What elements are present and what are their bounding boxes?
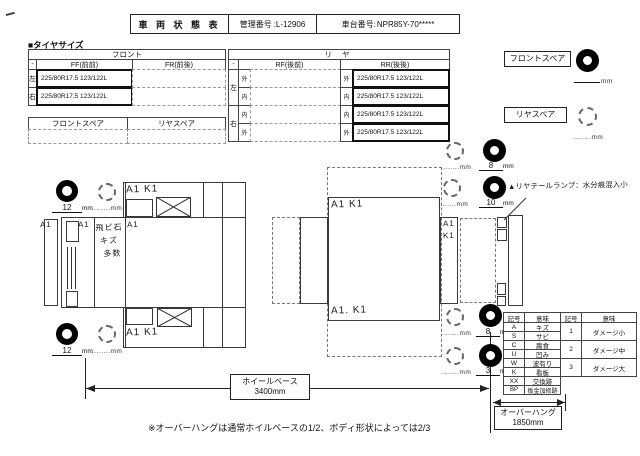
- legend-level-sym: 2: [560, 340, 582, 359]
- rear-rf-value-3: [250, 123, 341, 142]
- tire-dashed-icon: [446, 308, 464, 326]
- wheelbase-label: ホイールベース: [242, 377, 298, 387]
- wheelbase-value: 3400mm: [254, 387, 285, 397]
- scan-mark: [4, 6, 15, 16]
- tire-solid-icon: [483, 176, 506, 199]
- legend-code-mean: 板金加修跡: [524, 385, 561, 395]
- damage-mark: A1: [40, 220, 52, 229]
- crossed-box-marker: [157, 308, 192, 327]
- tail-lamp-square: [497, 229, 507, 241]
- damage-mark-alki: A1. K1: [331, 304, 367, 316]
- tread-blank-r1: ........mm: [441, 164, 471, 171]
- rear-panel-outline: [508, 215, 523, 306]
- rear-tire-table: リ ヤ - RF(後前) RR(後後) 左 右 外 外 225/80R17.5 …: [228, 49, 450, 142]
- spare-front-value: [28, 129, 128, 144]
- strip-divider-line: [203, 307, 204, 348]
- cab-detail-rect: [66, 291, 78, 307]
- tread-blank-left-bottom: ........mm: [92, 348, 122, 355]
- cargo-box-solid-outline: [328, 197, 440, 321]
- tread-blank-r2: ........mm: [438, 201, 468, 208]
- spare-rear-value: [127, 129, 226, 144]
- front-fr-right-value: [132, 87, 226, 106]
- damage-mark: A1: [78, 220, 90, 229]
- tire-solid-icon: [56, 180, 78, 202]
- bed-detail-rect: [126, 308, 153, 325]
- damage-mark-alki: A1 K1: [126, 183, 159, 195]
- wheelbase-box: ホイールベース 3400mm: [230, 374, 310, 400]
- rear-spare-box: リヤスペア: [504, 107, 567, 123]
- doc-title: 車 両 状 態 表: [138, 18, 220, 31]
- grille-stripes: [67, 247, 78, 289]
- vehicle-condition-sheet: 車 両 状 態 表 管理番号 :L-12906 車台番号: NPR85Y-70*…: [0, 0, 640, 456]
- rear-rr-value-0: 225/80R17.5 123/122L: [352, 69, 450, 88]
- front-ff-left-value: 225/80R17.5 123/122L: [36, 69, 133, 88]
- tread-blank-left-top: ........mm: [92, 205, 122, 212]
- front-bumper-outline: [44, 219, 58, 306]
- front-spare-depth: mm: [574, 74, 613, 85]
- fill-in-line: [574, 74, 600, 83]
- front-spare-box: フロントスペア: [504, 51, 571, 67]
- front-ff-right-value: 225/80R17.5 123/122L: [36, 87, 133, 106]
- tire-dashed-icon: [446, 142, 464, 160]
- doc-title-cell: 車 両 状 態 表: [130, 14, 229, 34]
- legend-level-mean: ダメージ大: [581, 358, 637, 377]
- bed-rear-gate: [222, 182, 246, 348]
- tread-blank-r4: ........mm: [441, 369, 471, 376]
- legend-code-sym: BP: [503, 385, 525, 395]
- taillamp-annotation: ▲リヤテールランプ：水分痕混入小: [508, 179, 628, 192]
- crossed-box-marker: [156, 197, 191, 217]
- bumper-dashed-outline: [272, 217, 300, 304]
- chassis-number-value: NPR85Y-70*****: [377, 20, 435, 29]
- damage-mark: A1: [443, 219, 455, 228]
- rear-rf-value-0: [250, 69, 341, 88]
- rear-rr-value-1: 225/80R17.5 123/122L: [352, 87, 450, 106]
- tail-lamp-square: [497, 283, 506, 295]
- tire-solid-icon: [56, 323, 78, 345]
- damage-mark-alki: A1 K1: [331, 198, 364, 210]
- rear-rr-value-2: 225/80R17.5 123/122L: [352, 105, 450, 124]
- legend-level-sym: 1: [560, 322, 582, 341]
- tire-dashed-icon: [98, 325, 116, 343]
- mgmt-number-value: :L-12906: [274, 20, 306, 29]
- truck-body-outline: [61, 217, 246, 308]
- front-fr-left-value: [132, 69, 226, 88]
- bed-detail-rect: [126, 199, 153, 217]
- chassis-number-label: 車台番号:: [342, 19, 376, 30]
- legend-level-mean: ダメージ中: [581, 340, 637, 359]
- tread-value-left-top: 12mm: [52, 203, 93, 213]
- cab-solid-outline: [300, 217, 328, 304]
- mgmt-number-cell: 管理番号 :L-12906: [228, 14, 317, 34]
- tail-lamp-square: [497, 217, 507, 228]
- damage-mark: A1: [127, 220, 139, 229]
- rear-spare-depth: ........mm: [573, 134, 603, 141]
- damage-mark-alki: A1 K1: [126, 326, 159, 338]
- tire-dashed-icon: [446, 347, 464, 365]
- tail-lamp-square: [497, 296, 506, 306]
- tire-solid-icon: [483, 139, 506, 162]
- overhang-value: 1850mm: [512, 418, 543, 428]
- tire-dashed-icon: [443, 179, 461, 197]
- rear-rr-value-3: 225/80R17.5 123/122L: [352, 123, 450, 142]
- tire-solid-icon: [479, 304, 502, 327]
- tread-value-left-bottom: 12mm: [52, 346, 93, 356]
- spare-tire-table: フロントスペア リヤスペア: [28, 117, 226, 144]
- legend-table: 記号 意味 記号 意味 A キズ S サビ C 腐食 U 凹み W 波有り K …: [503, 312, 637, 394]
- legend-level-sym: 3: [560, 358, 582, 377]
- rear-spare-tire-icon: [578, 107, 597, 126]
- front-tire-table: フロント - FF(前前) FR(前後) 左 225/80R17.5 123/1…: [28, 49, 226, 106]
- rear-dashed-outline: [460, 218, 496, 303]
- stone-chip-note: 飛ビ石 キズ 多数: [95, 220, 130, 260]
- tread-value-r2: 10mm: [479, 198, 514, 208]
- tire-dashed-icon: [98, 183, 116, 201]
- tire-solid-icon: [479, 344, 502, 367]
- overhang-note: ※オーバーハングは通常ホイルベースの1/2、ボディ形状によっては2/3: [148, 421, 430, 434]
- tread-blank-r3: ........mm: [441, 330, 471, 337]
- overhang-label: オーバーハング: [500, 408, 556, 418]
- rear-rf-value-1: [250, 87, 341, 106]
- rear-spare-label: リヤスペア: [516, 110, 555, 120]
- chassis-number-cell: 車台番号: NPR85Y-70*****: [316, 14, 460, 34]
- front-spare-label: フロントスペア: [510, 54, 565, 64]
- legend-level-mean: ダメージ小: [581, 322, 637, 341]
- mgmt-number-label: 管理番号: [240, 19, 272, 30]
- rear-rf-value-2: [250, 105, 341, 124]
- strip-divider-line: [203, 182, 204, 218]
- overhang-box: オーバーハング 1850mm: [494, 406, 562, 430]
- damage-mark: K1: [443, 231, 455, 240]
- front-spare-tire-icon: [576, 49, 599, 72]
- tread-value-r1: 8mm: [479, 161, 514, 171]
